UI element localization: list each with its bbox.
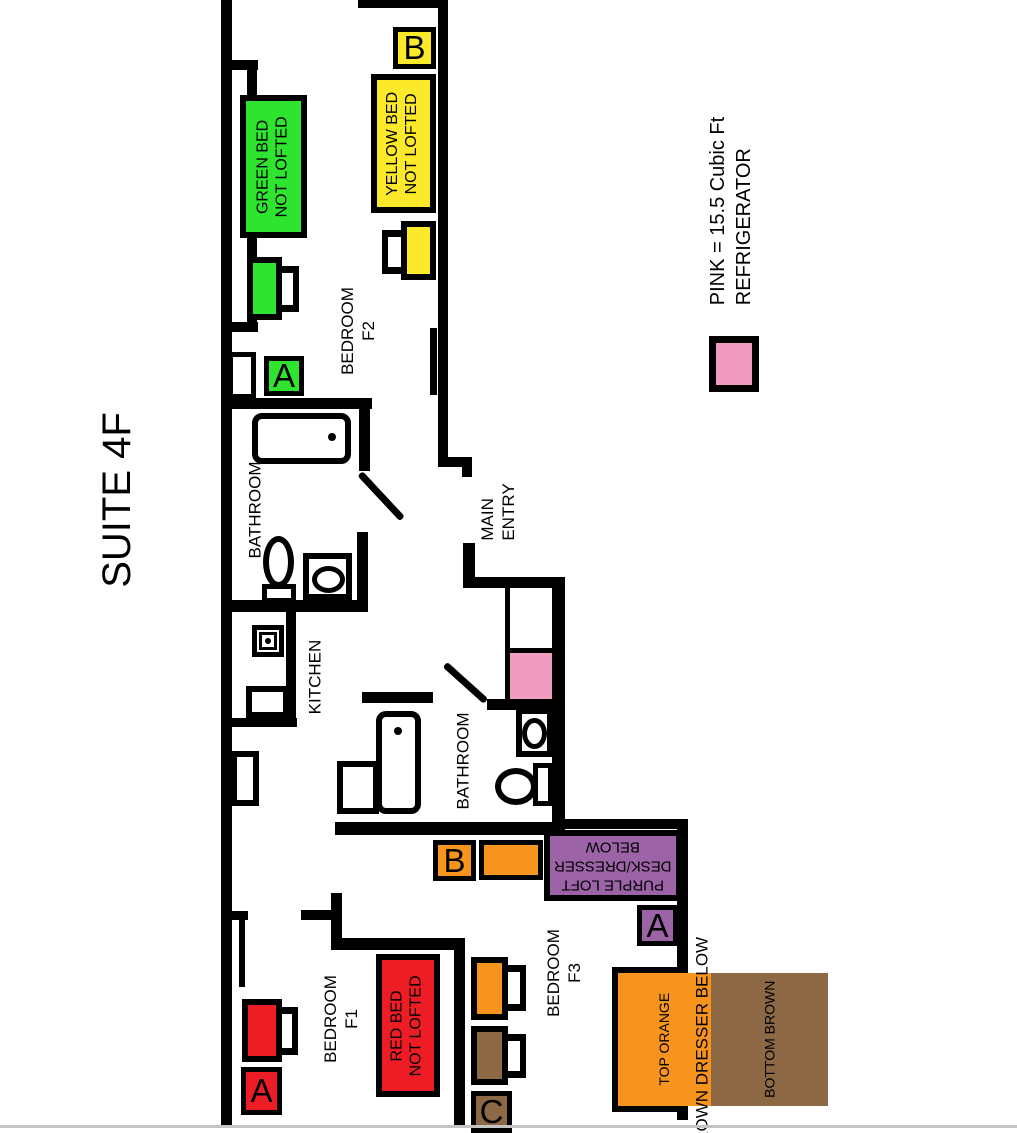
wall xyxy=(463,577,560,588)
wall xyxy=(221,718,297,727)
room-label-main-entry: MAIN ENTRY xyxy=(477,483,520,540)
wall xyxy=(359,409,370,471)
green-bed-label-line2: NOT LOFTED xyxy=(274,116,293,217)
label-text: A xyxy=(273,357,295,395)
tub-drain xyxy=(394,727,402,735)
red-desk xyxy=(242,999,282,1062)
room-name: ENTRY xyxy=(498,483,519,540)
room-label-kitchen: KITCHEN xyxy=(304,640,325,715)
brown-desk xyxy=(471,1026,508,1085)
room-name: MAIN xyxy=(477,483,498,540)
purple-loft-label-line3: BELOW xyxy=(554,837,672,856)
kitchen-sink-drain xyxy=(265,638,271,644)
position-label-a-green: A xyxy=(264,356,304,396)
room-name: BEDROOM xyxy=(337,287,358,375)
legend-pink-swatch xyxy=(709,336,759,392)
green-bed-label-line1: GREEN BED xyxy=(255,116,274,217)
purple-loft-label-line2: DESK/DRESSER xyxy=(554,856,672,875)
purple-loft: PURPLE LOFT DESK/DRESSER BELOW xyxy=(544,830,682,901)
wall xyxy=(454,938,465,1126)
bottom-brown-label: BOTTOM BROWN xyxy=(761,981,778,1098)
wall xyxy=(358,0,448,8)
door-swing xyxy=(443,662,489,704)
wall xyxy=(565,819,688,829)
orange-dresser xyxy=(479,840,543,880)
brown-dresser-note: BROWN DRESSER BELOW xyxy=(691,937,712,1133)
door-panel xyxy=(231,751,259,806)
label-text: A xyxy=(250,1072,272,1110)
yellow-desk-chair xyxy=(382,230,401,274)
wall xyxy=(357,532,368,602)
room-name: BEDROOM xyxy=(320,975,341,1063)
red-bed: RED BED NOT LOFTED xyxy=(376,954,440,1097)
wall xyxy=(362,692,433,703)
yellow-bed-label-line1: YELLOW BED xyxy=(385,91,404,195)
brown-half: BOTTOM BROWN xyxy=(711,973,828,1106)
room-label-bedroom-f1: BEDROOM F1 xyxy=(320,975,363,1063)
yellow-bed-label-line2: NOT LOFTED xyxy=(404,91,423,195)
door-swing xyxy=(357,471,404,521)
tub-shelf xyxy=(337,761,379,814)
suite-title-text: SUITE 4F xyxy=(95,412,139,588)
wall xyxy=(462,457,472,477)
room-number: F1 xyxy=(341,975,362,1063)
sink-basin xyxy=(312,566,345,593)
wall xyxy=(335,822,565,835)
note-text: BROWN DRESSER BELOW xyxy=(692,937,711,1133)
room-label-bedroom-f2: BEDROOM F2 xyxy=(337,287,380,375)
floor-plan: GREEN BED NOT LOFTED A B YELLOW BED NOT … xyxy=(0,0,1017,1133)
legend-text: PINK = 15.5 Cubic Ft REFRIGERATOR xyxy=(705,117,757,305)
label-text: B xyxy=(443,842,465,880)
room-name: BATHROOM xyxy=(244,462,265,559)
toilet-bowl xyxy=(263,536,294,588)
legend-line1: PINK = 15.5 Cubic Ft xyxy=(705,117,731,305)
brown-desk-chair xyxy=(507,1034,526,1078)
toilet-bowl xyxy=(495,768,537,805)
room-label-bathroom-top: BATHROOM xyxy=(244,462,265,559)
room-name: BATHROOM xyxy=(452,713,473,810)
red-desk-chair xyxy=(281,1007,298,1055)
door-leaf xyxy=(430,328,437,395)
room-number: F3 xyxy=(564,929,585,1017)
wall xyxy=(331,893,342,943)
orange-desk xyxy=(471,957,508,1020)
sink-basin xyxy=(522,718,547,749)
position-label-b-orange: B xyxy=(433,840,476,881)
green-desk xyxy=(247,257,282,320)
top-orange-label: TOP ORANGE xyxy=(656,993,673,1086)
room-label-bathroom-bottom: BATHROOM xyxy=(452,713,473,810)
position-label-a-purple: A xyxy=(637,905,678,946)
bathtub xyxy=(252,413,351,464)
wall xyxy=(221,322,258,332)
refrigerator xyxy=(510,653,552,699)
stove xyxy=(246,686,289,718)
room-name: KITCHEN xyxy=(304,640,325,715)
position-label-b-yellow: B xyxy=(393,27,436,69)
label-text: A xyxy=(646,907,668,945)
wall xyxy=(221,0,232,1126)
green-desk-chair xyxy=(280,266,299,312)
room-number: F2 xyxy=(358,287,379,375)
suite-title: SUITE 4F xyxy=(92,412,142,588)
room-label-bedroom-f3: BEDROOM F3 xyxy=(543,929,586,1017)
red-bed-label-line2: NOT LOFTED xyxy=(408,975,427,1076)
position-label-a-red: A xyxy=(241,1067,282,1115)
orange-brown-loft-unit: TOP ORANGE BOTTOM BROWN xyxy=(612,967,680,1112)
door-panel xyxy=(228,352,256,399)
legend-line2: REFRIGERATOR xyxy=(731,117,757,305)
page-edge-line xyxy=(0,1125,1017,1128)
yellow-bed: YELLOW BED NOT LOFTED xyxy=(371,74,436,213)
tub-drain xyxy=(328,433,336,441)
door-leaf xyxy=(239,911,245,987)
yellow-desk xyxy=(401,221,436,280)
wall xyxy=(331,938,465,950)
orange-desk-chair xyxy=(507,965,526,1011)
red-bed-label-line1: RED BED xyxy=(389,975,408,1076)
wall xyxy=(438,0,448,465)
room-name: BEDROOM xyxy=(543,929,564,1017)
green-bed: GREEN BED NOT LOFTED xyxy=(240,95,307,238)
purple-loft-label-line1: PURPLE LOFT xyxy=(554,875,672,894)
wall xyxy=(221,398,372,409)
label-text: B xyxy=(403,29,425,67)
